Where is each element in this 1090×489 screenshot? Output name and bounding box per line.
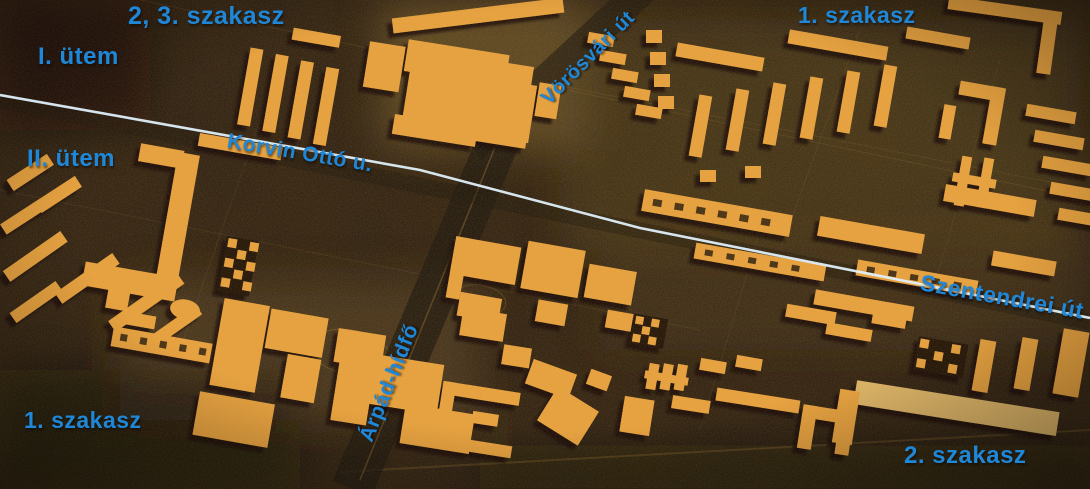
aerial-photo-background xyxy=(0,0,1090,489)
phase-label-1-szakasz-top: 1. szakasz xyxy=(798,4,916,27)
phase-label-ii-utem: II. ütem xyxy=(27,147,115,171)
vignette-overlay xyxy=(0,0,1090,489)
phase-label-2-szakasz-bottom: 2. szakasz xyxy=(904,444,1026,468)
phase-label-1-szakasz-bottom: 1. szakasz xyxy=(24,409,142,432)
aerial-model-photo: 2, 3. szakasz I. ütem II. ütem 1. szakas… xyxy=(0,0,1090,489)
phase-label-2-3-szakasz: 2, 3. szakasz xyxy=(128,4,285,29)
phase-label-i-utem: I. ütem xyxy=(38,45,119,69)
